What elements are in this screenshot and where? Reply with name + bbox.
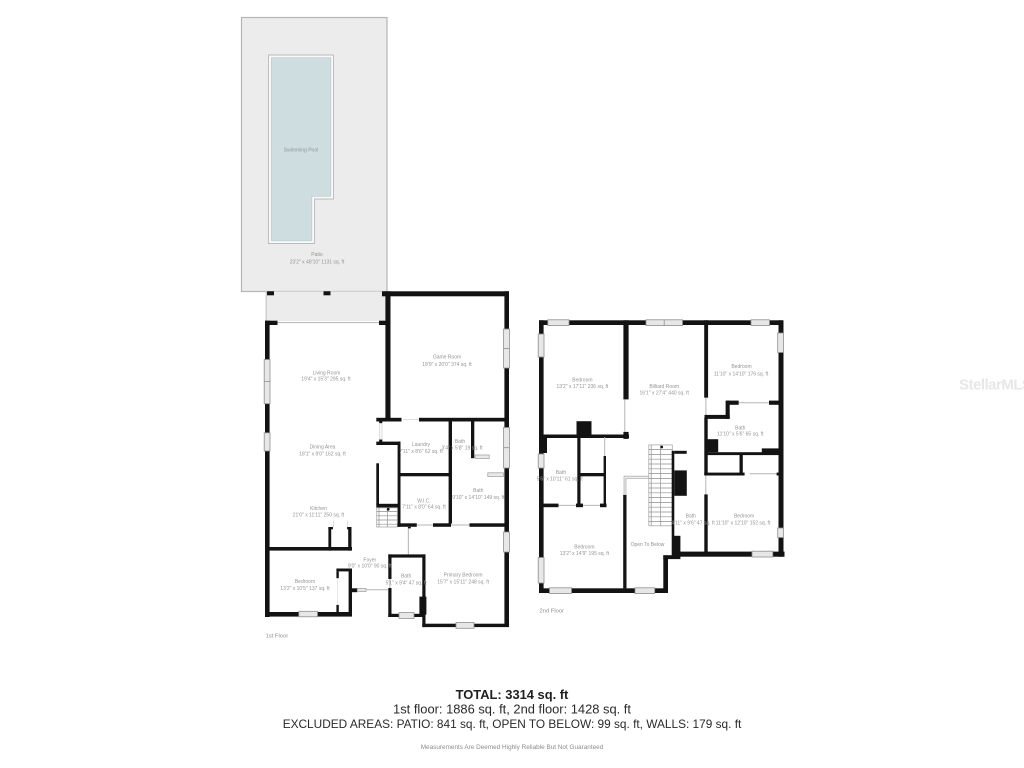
svg-text:5'6" x 10'11" 61 sq. ft: 5'6" x 10'11" 61 sq. ft [537,476,584,482]
svg-text:Bath: Bath [473,488,484,494]
svg-text:Bedroom: Bedroom [731,364,751,370]
svg-text:15'7" x 15'11" 248 sq. ft: 15'7" x 15'11" 248 sq. ft [437,580,489,586]
svg-text:Swimming Pool: Swimming Pool [284,147,318,153]
svg-text:13'2" x 17'11" 236 sq. ft: 13'2" x 17'11" 236 sq. ft [557,384,609,390]
svg-text:Living Room: Living Room [313,370,341,376]
svg-text:13'2" x 14'9" 195 sq. ft: 13'2" x 14'9" 195 sq. ft [560,551,610,557]
svg-text:Bedroom: Bedroom [734,514,754,520]
svg-text:16'1" x 27'4" 440 sq. ft: 16'1" x 27'4" 440 sq. ft [640,391,690,397]
svg-text:13'2" x 10'5" 137 sq. ft: 13'2" x 10'5" 137 sq. ft [280,586,330,592]
svg-text:3'4" x 5'8" 19 sq. ft: 3'4" x 5'8" 19 sq. ft [441,445,483,451]
svg-text:1st Floor: 1st Floor [266,634,289,640]
svg-text:9'0" x 10'0" 90 sq. ft: 9'0" x 10'0" 90 sq. ft [348,564,392,570]
svg-text:11'10" x 14'10" 176 sq. ft: 11'10" x 14'10" 176 sq. ft [714,371,769,377]
svg-text:Foyer: Foyer [363,557,376,563]
svg-text:7'11" x 8'6" 62 sq. ft: 7'11" x 8'6" 62 sq. ft [399,449,443,455]
svg-text:TOTAL: 3314 sq. ft: TOTAL: 3314 sq. ft [456,687,569,702]
svg-text:Game Room: Game Room [433,355,461,361]
svg-text:Bath: Bath [686,514,697,520]
svg-text:StellarMLS: StellarMLS [959,377,1024,394]
svg-text:Patio: Patio [311,252,323,258]
svg-text:7'11" x 8'0" 64 sq. ft: 7'11" x 8'0" 64 sq. ft [402,504,446,510]
svg-text:11'10" x 5'6" 65 sq. ft: 11'10" x 5'6" 65 sq. ft [717,431,764,437]
svg-text:Bath: Bath [556,470,567,476]
svg-text:Bath: Bath [401,573,412,579]
svg-text:5'1" x 9'4" 47 sq. ft: 5'1" x 9'4" 47 sq. ft [386,580,428,586]
svg-text:Kitchen: Kitchen [310,506,327,512]
svg-text:Measurements Are Deemed Highly: Measurements Are Deemed Highly Reliable … [421,744,604,751]
svg-text:23'2" x 48'10" 1131 sq. ft: 23'2" x 48'10" 1131 sq. ft [290,259,345,265]
svg-text:Billiard Room: Billiard Room [649,384,679,390]
svg-text:1st floor: 1886 sq. ft, 2nd fl: 1st floor: 1886 sq. ft, 2nd floor: 1428 … [393,702,631,717]
svg-text:Bedroom: Bedroom [574,545,594,551]
svg-text:18'1" x 9'0" 162 sq. ft: 18'1" x 9'0" 162 sq. ft [299,452,346,458]
svg-text:Open To Below: Open To Below [631,542,665,548]
svg-text:21'0" x 11'11" 250 sq. ft: 21'0" x 11'11" 250 sq. ft [293,512,345,518]
svg-text:18'9" x 20'0" 374 sq. ft: 18'9" x 20'0" 374 sq. ft [422,362,472,368]
svg-text:Bedroom: Bedroom [295,579,315,585]
svg-text:Bath: Bath [455,439,466,445]
svg-text:Dining Area: Dining Area [310,445,336,451]
svg-text:2nd Floor: 2nd Floor [540,608,565,614]
svg-text:EXCLUDED AREAS: PATIO: 841 sq.: EXCLUDED AREAS: PATIO: 841 sq. ft, OPEN … [283,717,742,731]
svg-text:Laundry: Laundry [412,442,431,448]
svg-text:Bedroom: Bedroom [572,378,592,384]
svg-text:9'10" x 14'10" 149 sq. ft: 9'10" x 14'10" 149 sq. ft [452,495,505,501]
svg-text:11'10" x 12'10" 152 sq. ft: 11'10" x 12'10" 152 sq. ft [716,521,771,527]
svg-text:4'11" x 9'6" 47 sq. ft: 4'11" x 9'6" 47 sq. ft [671,521,715,527]
svg-text:Primary Bedroom: Primary Bedroom [444,573,483,579]
svg-text:19'4" x 15'3" 295 sq. ft: 19'4" x 15'3" 295 sq. ft [301,377,351,383]
